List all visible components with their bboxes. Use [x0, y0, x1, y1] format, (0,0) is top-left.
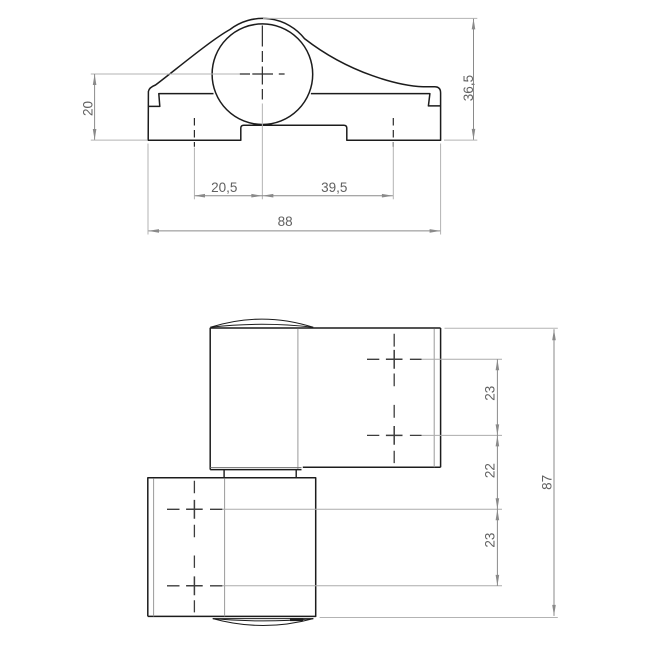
svg-text:88: 88 — [278, 214, 293, 229]
svg-text:39,5: 39,5 — [321, 180, 347, 195]
svg-text:87: 87 — [540, 475, 555, 490]
svg-text:36,5: 36,5 — [461, 75, 476, 101]
svg-text:20: 20 — [81, 101, 96, 116]
svg-text:20,5: 20,5 — [211, 180, 237, 195]
svg-text:23: 23 — [483, 533, 498, 548]
svg-text:22: 22 — [483, 463, 498, 478]
svg-text:23: 23 — [483, 386, 498, 401]
